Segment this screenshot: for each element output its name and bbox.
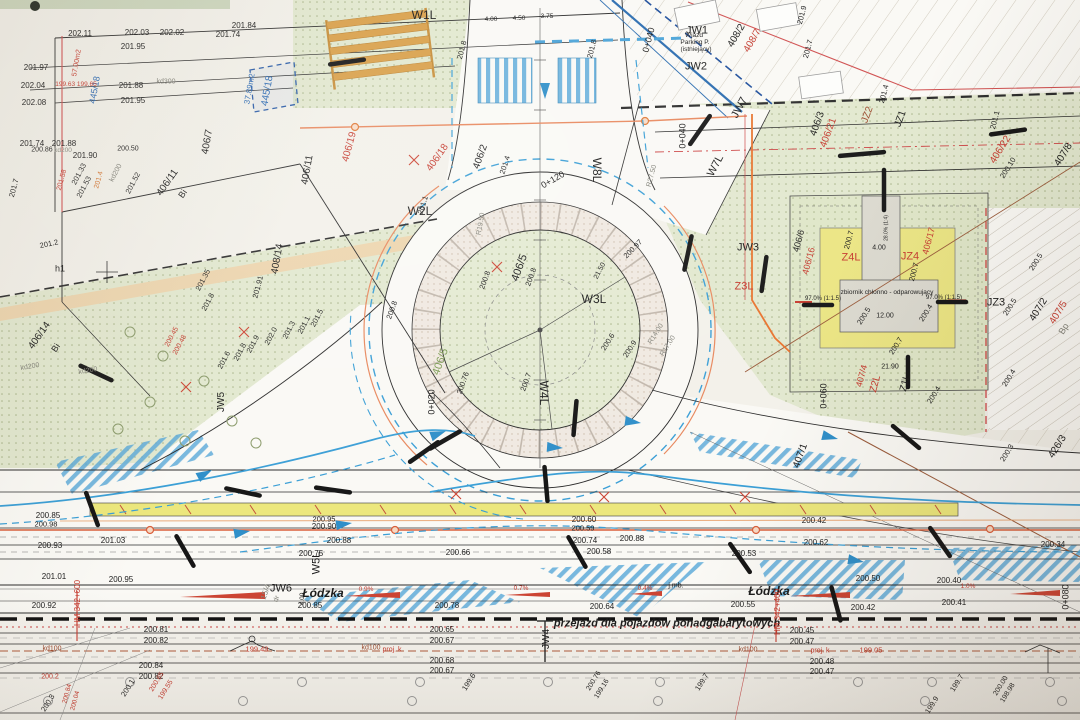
plan-label: 200.47 <box>790 638 814 646</box>
plan-label: 407/8 <box>1053 142 1075 169</box>
plan-labels-layer: W1LW2LW8LW3LW4LW5LW7LJW1JW2JW3JW4JW5JW6J… <box>0 0 1080 720</box>
plan-label: 201.4 <box>499 155 512 175</box>
plan-label: 201.74 <box>216 31 240 39</box>
plan-label: 200.40 <box>937 577 961 585</box>
plan-label: 4.50 <box>513 16 526 23</box>
plan-label: 200.42 <box>802 517 826 525</box>
plan-label: 200.5 <box>856 306 872 326</box>
marker-w3l: W3L <box>582 293 607 305</box>
label-reservoir: zbiornik chłonno - odparowujący <box>841 290 934 297</box>
plan-label: 200.7 <box>888 336 904 356</box>
plan-label: 200.3 <box>999 443 1015 463</box>
plan-label: Bi <box>177 188 189 200</box>
plan-label: Bp <box>1057 322 1070 336</box>
plan-label: 201.8 <box>200 292 215 312</box>
plan-label: 28.0% (1:4) <box>885 215 890 241</box>
plan-label: 200.75 <box>299 550 323 558</box>
plan-label: 0.7% <box>514 586 529 593</box>
plan-label: 57.00m2 <box>71 49 83 77</box>
plan-label: 201.35 <box>194 268 211 292</box>
plan-label: 202.11 <box>68 30 92 38</box>
plan-label: 201.6 <box>216 350 231 370</box>
plan-label: 200.48 <box>810 658 834 666</box>
plan-label: 200.64 <box>590 603 614 611</box>
plan-label: 200.41 <box>942 599 966 607</box>
plan-label: 200.50 <box>856 575 880 583</box>
plan-label: 200.78 <box>435 602 459 610</box>
plan-label: 200.10 <box>999 156 1018 179</box>
marker-jw2: JW2 <box>685 62 707 73</box>
plan-label: 200.74 <box>573 537 597 545</box>
plan-label: kd100 <box>361 645 380 652</box>
plan-label: kd200 <box>78 366 98 376</box>
plan-label: 0+080 <box>1062 584 1071 609</box>
plan-label: 408/7 <box>742 28 763 55</box>
plan-label: 200.55 <box>731 601 755 609</box>
plan-label: 406/18 <box>425 143 451 174</box>
plan-label: R19.50 <box>476 212 487 235</box>
plan-label: 200.97 <box>622 238 644 260</box>
plan-label: 426/3 <box>1047 434 1069 461</box>
plan-label: 406/6 <box>792 229 807 253</box>
plan-label: 407/1 <box>792 443 810 470</box>
plan-label: 201.97 <box>24 64 48 72</box>
plan-label: 200.90 <box>312 523 336 531</box>
plan-label: 201.9 <box>796 5 808 25</box>
plan-label: 201.91 <box>251 275 264 299</box>
plan-label: 200.59 <box>572 524 595 532</box>
plan-label: 200.85 <box>298 602 322 610</box>
plan-label: kd100 <box>738 647 757 654</box>
plan-label: 406/17 <box>921 227 937 256</box>
plan-label: (istniejący) <box>680 47 711 54</box>
plan-label: 200.2 <box>41 674 59 681</box>
plan-label: 201.90 <box>73 152 97 160</box>
plan-label: 200.04 <box>70 691 81 712</box>
plan-label: 200.6 <box>600 332 616 352</box>
site-plan: W1LW2LW8LW3LW4LW5LW7LJW1JW2JW3JW4JW5JW6J… <box>0 0 1080 720</box>
plan-label: 200.7 <box>519 372 532 392</box>
marker-jz2: JZ2 <box>860 105 875 124</box>
plan-label: 201.4 <box>878 84 890 104</box>
plan-label: j.mb. <box>668 583 683 590</box>
plan-label: 199.9 <box>924 695 940 715</box>
marker-jw5: JW5 <box>217 392 227 412</box>
plan-label: 0+120 <box>540 170 566 190</box>
plan-label: dr <box>273 595 282 603</box>
plan-label: 200.66 <box>446 549 470 557</box>
plan-label: 199.49 <box>246 645 269 653</box>
marker-w7l: W7L <box>706 153 726 178</box>
plan-label: R17.00 <box>659 335 677 358</box>
plan-label: 406/11 <box>300 154 315 185</box>
plan-label: 200.8 <box>385 300 398 320</box>
plan-label: 201.8 <box>232 342 247 362</box>
plan-label: kd200 <box>108 163 123 183</box>
plan-label: 4.00 <box>485 17 498 24</box>
plan-label: 37.89m2 <box>243 73 256 105</box>
marker-z4l: Z4L <box>842 253 861 264</box>
marker-z3l: Z3L <box>735 282 754 293</box>
street-label-lodzka-west: Łódzka <box>302 587 343 599</box>
plan-label: 201.5 <box>309 308 324 328</box>
plan-label: 200.81 <box>144 626 168 634</box>
plan-label: Bi <box>50 342 62 354</box>
plan-label: 199.05 <box>860 646 883 654</box>
plan-label: 21.90 <box>881 364 899 371</box>
plan-label: 407/4 <box>855 364 870 388</box>
marker-jw4: JW4 <box>542 629 552 649</box>
plan-label: 201.52 <box>124 171 141 195</box>
plan-label: 4.00 <box>872 245 886 252</box>
plan-label: R27.50 <box>646 164 659 188</box>
plan-label: 0+040 <box>679 123 688 148</box>
plan-label: 200.7 <box>843 230 855 250</box>
plan-label: 200.8 <box>478 270 491 290</box>
plan-label: 201.84 <box>232 22 256 30</box>
plan-label: 201.58 <box>56 169 68 192</box>
plan-label: 202.02 <box>160 29 184 37</box>
plan-label: 1.0% <box>961 584 976 591</box>
street-label-lodzka-east: Łódzka <box>748 585 789 597</box>
plan-label: 200.7 <box>908 262 920 282</box>
marker-w4l: W4L <box>538 381 550 406</box>
plan-label: proj. k <box>382 647 401 654</box>
plan-label: 21.50 <box>593 262 607 281</box>
plan-label: 445/18 <box>260 75 275 107</box>
plan-label: 201.4 <box>93 171 104 190</box>
plan-label: 200.95 <box>313 515 336 523</box>
plan-label: kd200 <box>54 148 72 155</box>
marker-z1l: Z1L <box>899 373 913 392</box>
plan-label: 406/19 <box>341 131 359 163</box>
plan-label: 201.8 <box>586 39 598 59</box>
plan-label: 199.6 <box>461 672 477 692</box>
marker-jz4: JZ4 <box>901 252 919 263</box>
marker-w8l: W8L <box>591 158 603 183</box>
plan-label: 200.4 <box>918 303 934 323</box>
plan-label: 200.67 <box>430 667 454 675</box>
plan-label: 200.95 <box>109 576 133 584</box>
plan-label: 407/5 <box>1048 300 1070 327</box>
plan-label: 200.8 <box>524 267 537 287</box>
plan-label: 0+020 <box>428 389 437 414</box>
plan-label: 0.9% <box>359 587 374 594</box>
station-hm342-400: HM 342+400 <box>774 589 782 635</box>
marker-jw6: JW6 <box>270 584 292 595</box>
marker-jw3: JW3 <box>737 243 759 254</box>
plan-label: 202.04 <box>21 82 45 90</box>
plan-label: 408/14 <box>270 243 285 275</box>
station-hm342-600: HM 342+600 <box>74 580 82 626</box>
plan-label: 200.88 <box>327 537 351 545</box>
plan-label: 200.4 <box>926 385 942 405</box>
plan-label: 200.62 <box>804 539 828 547</box>
plan-label: 200.65 <box>430 626 454 634</box>
plan-label: 201.7 <box>8 178 20 198</box>
plan-label: 0+060 <box>820 383 829 408</box>
plan-label: kd200 <box>20 362 40 372</box>
plan-label: 200.82 <box>144 637 168 645</box>
plan-label: 201.95 <box>121 43 145 51</box>
plan-label: 200.42 <box>851 604 875 612</box>
plan-label: 12.00 <box>876 313 894 320</box>
plan-label: 200.76 <box>456 371 471 395</box>
plan-label: 200.3 <box>40 693 56 713</box>
plan-label: 201.8 <box>456 40 468 60</box>
plan-label: 201.1 <box>989 110 1001 130</box>
plan-label: 200.92 <box>32 602 56 610</box>
plan-label: kd300 <box>156 79 175 86</box>
plan-label: 200.34 <box>1041 541 1065 549</box>
plan-label: 406/16 <box>801 247 817 276</box>
plan-label: 97.0% (1:1.5) <box>805 296 841 302</box>
plan-label: 200.9 <box>622 339 638 359</box>
marker-w1l: W1L <box>412 9 437 21</box>
plan-label: 200.84 <box>139 662 163 670</box>
plan-label: 201.7 <box>802 39 814 59</box>
plan-label: R14.00 <box>647 323 665 346</box>
marker-jz3: JZ3 <box>987 298 1005 309</box>
plan-label: 200.50 <box>117 146 138 153</box>
plan-label: 3.75 <box>541 14 554 21</box>
plan-label: 200.4 <box>1001 368 1017 388</box>
plan-label: 202.03 <box>125 29 149 37</box>
plan-label: 200.58 <box>587 548 611 556</box>
plan-label: 199.63 199.65 <box>55 82 97 89</box>
plan-label: 200.93 <box>38 542 62 550</box>
plan-label: 406/5 <box>431 347 451 377</box>
plan-label: 201.88 <box>119 82 143 90</box>
plan-label: h1 <box>55 265 65 274</box>
plan-label: 200.88 <box>620 535 644 543</box>
plan-label: 200.86 <box>31 147 52 154</box>
plan-label: 0.4% <box>638 586 653 593</box>
plan-label: 200.68 <box>430 657 454 665</box>
plan-label: 200.1 <box>120 678 136 698</box>
plan-label: 200.53 <box>732 550 756 558</box>
marker-jz1: JZ1 <box>893 109 908 128</box>
plan-label: 97.0% (1:1.5) <box>926 295 962 301</box>
plan-label: proj. k <box>810 648 829 655</box>
plan-label: 201.95 <box>121 97 145 105</box>
plan-label: 201.2 <box>39 238 59 249</box>
plan-label: 200.47 <box>810 668 834 676</box>
plan-label: 200.45 <box>790 627 814 635</box>
plan-label: 199.7 <box>949 673 965 693</box>
plan-label: 200.67 <box>430 637 454 645</box>
plan-label: 201.9 <box>245 334 260 354</box>
plan-label: 202.08 <box>22 99 46 107</box>
note-oversize-route: przejazd dla pojazdów ponadgabarytowych <box>554 619 780 630</box>
plan-label: kd100 <box>42 646 61 653</box>
plan-label: 406/2 <box>472 144 490 171</box>
plan-label: 201.01 <box>42 573 66 581</box>
plan-label: 406/7 <box>201 129 215 155</box>
plan-label: 0+040 <box>641 27 656 54</box>
plan-label: 199.7 <box>694 672 710 692</box>
plan-label: 200.5 <box>1028 252 1044 272</box>
plan-label: 201.3 <box>281 320 296 340</box>
marker-jw7: JW7 <box>730 96 750 121</box>
plan-label: 201.03 <box>101 537 125 545</box>
plan-label: 202.0 <box>263 326 278 346</box>
plan-label: 200.98 <box>35 520 58 528</box>
marker-z2l: Z2L <box>869 374 883 393</box>
